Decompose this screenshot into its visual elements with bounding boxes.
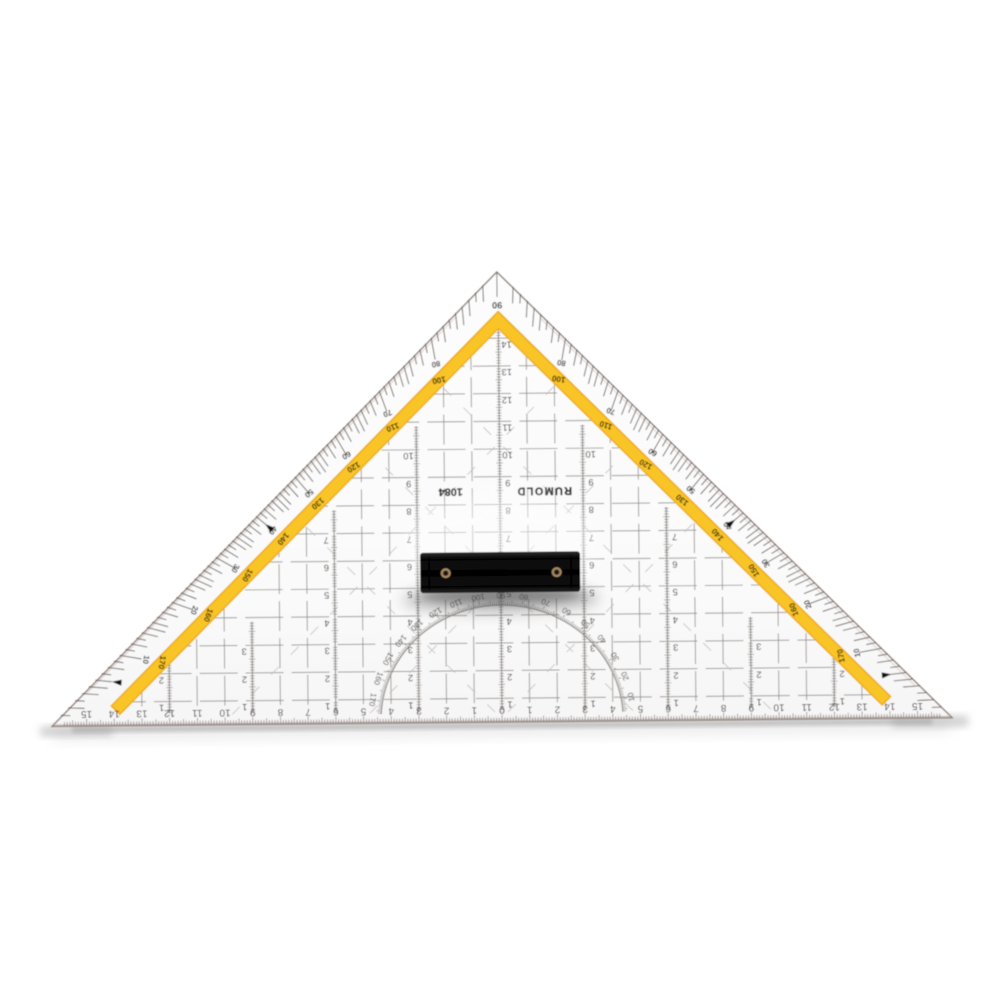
- svg-text:3: 3: [241, 647, 246, 658]
- svg-text:8: 8: [589, 505, 594, 516]
- svg-text:1084: 1084: [439, 485, 463, 497]
- svg-text:7: 7: [305, 706, 311, 717]
- svg-text:10: 10: [585, 449, 596, 460]
- svg-text:13: 13: [136, 708, 148, 719]
- svg-text:6: 6: [665, 703, 671, 714]
- svg-text:4: 4: [507, 616, 512, 627]
- svg-text:1: 1: [507, 699, 512, 710]
- svg-text:7: 7: [324, 535, 329, 546]
- svg-text:2: 2: [159, 675, 164, 686]
- svg-text:4: 4: [673, 615, 678, 626]
- svg-text:2: 2: [242, 674, 247, 685]
- svg-text:9: 9: [748, 702, 754, 713]
- svg-text:1: 1: [673, 698, 678, 709]
- svg-text:6: 6: [672, 559, 677, 570]
- svg-text:3: 3: [325, 646, 330, 657]
- svg-text:1: 1: [242, 702, 247, 713]
- svg-text:8: 8: [406, 506, 411, 517]
- svg-text:10: 10: [219, 707, 231, 718]
- svg-text:13: 13: [856, 701, 868, 712]
- svg-text:11: 11: [502, 422, 512, 433]
- svg-text:14: 14: [884, 700, 896, 711]
- svg-text:12: 12: [502, 395, 513, 406]
- svg-text:11: 11: [801, 701, 812, 712]
- svg-text:2: 2: [408, 673, 413, 684]
- svg-text:1: 1: [408, 700, 413, 711]
- svg-text:1: 1: [325, 701, 330, 712]
- svg-text:3: 3: [582, 703, 588, 714]
- svg-text:1: 1: [590, 699, 595, 710]
- svg-text:3: 3: [416, 705, 422, 716]
- svg-text:2: 2: [554, 704, 560, 715]
- svg-text:3: 3: [507, 644, 512, 655]
- svg-text:1: 1: [526, 704, 532, 715]
- svg-text:5: 5: [637, 703, 643, 714]
- svg-text:1: 1: [757, 697, 762, 708]
- svg-text:13: 13: [502, 367, 513, 378]
- svg-text:4: 4: [324, 618, 329, 629]
- svg-text:11: 11: [192, 707, 203, 718]
- svg-text:3: 3: [673, 642, 678, 653]
- svg-text:6: 6: [333, 706, 339, 717]
- svg-text:15: 15: [911, 700, 923, 711]
- svg-text:7: 7: [672, 532, 677, 543]
- svg-text:5: 5: [360, 705, 366, 716]
- svg-text:15: 15: [80, 708, 92, 719]
- svg-text:9: 9: [249, 707, 255, 718]
- svg-text:9: 9: [505, 478, 510, 489]
- svg-text:2: 2: [325, 673, 330, 684]
- svg-text:90: 90: [492, 300, 502, 310]
- svg-text:2: 2: [756, 669, 761, 680]
- svg-text:1: 1: [471, 704, 477, 715]
- svg-text:10: 10: [773, 701, 785, 712]
- svg-text:2: 2: [590, 671, 595, 682]
- svg-text:1: 1: [159, 703, 164, 714]
- svg-text:5: 5: [672, 587, 677, 598]
- svg-text:2: 2: [443, 705, 449, 716]
- svg-text:5: 5: [324, 590, 329, 601]
- svg-text:6: 6: [324, 563, 329, 574]
- svg-text:4: 4: [610, 703, 616, 714]
- svg-text:6: 6: [407, 562, 412, 573]
- svg-text:3: 3: [756, 642, 761, 653]
- svg-text:2: 2: [507, 672, 512, 683]
- svg-text:7: 7: [693, 702, 699, 713]
- svg-text:0: 0: [499, 704, 505, 715]
- svg-text:6: 6: [589, 560, 594, 571]
- svg-text:10: 10: [403, 451, 414, 462]
- svg-text:2: 2: [673, 670, 678, 681]
- svg-text:8: 8: [720, 702, 726, 713]
- svg-text:10: 10: [502, 450, 513, 461]
- svg-text:9: 9: [588, 477, 593, 488]
- svg-text:12: 12: [828, 701, 840, 712]
- svg-text:8: 8: [277, 706, 283, 717]
- svg-text:14: 14: [108, 708, 120, 719]
- svg-text:9: 9: [406, 479, 411, 490]
- svg-text:2: 2: [839, 668, 844, 679]
- svg-text:12: 12: [164, 707, 176, 718]
- svg-text:4: 4: [388, 705, 394, 716]
